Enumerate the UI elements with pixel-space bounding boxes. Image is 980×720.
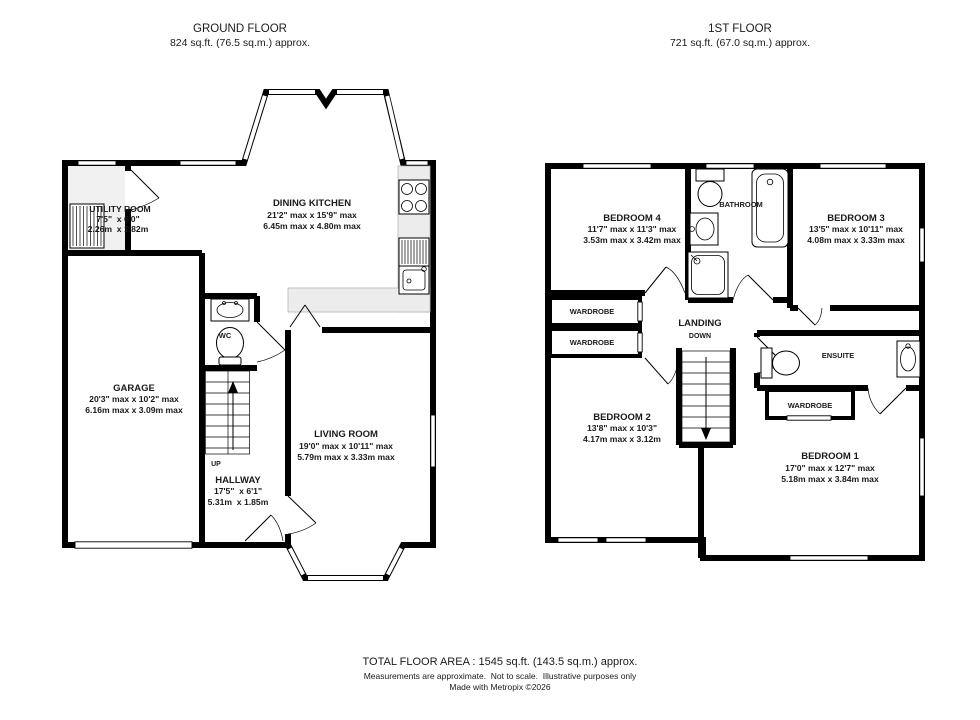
sink-icon bbox=[897, 341, 920, 377]
living-room-label: LIVING ROOM bbox=[314, 429, 378, 440]
sink-icon bbox=[690, 213, 718, 245]
first-floor-plan: BEDROOM 4 11'7" max x 11'3" max 3.53m ma… bbox=[548, 164, 924, 560]
bedroom-2-label: BEDROOM 2 bbox=[593, 412, 651, 423]
window bbox=[180, 161, 236, 165]
garage-door bbox=[75, 542, 192, 548]
bedroom-4-label: BEDROOM 4 bbox=[603, 213, 661, 224]
bedroom-4-dims-metric: 3.53m max x 3.42m max bbox=[583, 235, 681, 245]
dining-kitchen-dims-metric: 6.45m max x 4.80m max bbox=[263, 221, 361, 231]
kitchen-sink-icon bbox=[399, 238, 429, 294]
bedroom-3-dims-metric: 4.08m max x 3.33m max bbox=[807, 235, 905, 245]
window bbox=[706, 164, 754, 168]
window bbox=[431, 415, 435, 467]
wc-sink-icon bbox=[211, 299, 249, 321]
garage-dims-imperial: 20'3" max x 10'2" max bbox=[89, 394, 179, 404]
ensuite-label: ENSUITE bbox=[822, 351, 855, 360]
bedroom-1-dims-imperial: 17'0" max x 12'7" max bbox=[785, 463, 875, 473]
ground-floor-title: GROUND FLOOR bbox=[193, 23, 287, 35]
ground-floor-area: 824 sq.ft. (76.5 sq.m.) approx. bbox=[170, 37, 310, 49]
window bbox=[606, 538, 646, 542]
stairs-down-label: DOWN bbox=[689, 333, 711, 340]
bedroom-1-label: BEDROOM 1 bbox=[801, 451, 859, 462]
utility-room-label: UTILITY ROOM bbox=[89, 204, 150, 214]
credit: Made with Metropix ©2026 bbox=[449, 682, 551, 692]
stove-icon bbox=[399, 180, 429, 214]
bedroom-2-dims-imperial: 13'8" max x 10'3" bbox=[587, 423, 657, 433]
dining-kitchen-dims-imperial: 21'2" max x 15'9" max bbox=[267, 210, 357, 220]
shower-icon bbox=[688, 252, 728, 298]
wardrobe-2-label: WARDROBE bbox=[570, 338, 615, 347]
living-room-dims-imperial: 19'0" max x 10'11" max bbox=[299, 441, 393, 451]
window bbox=[558, 538, 598, 542]
bedroom-3-label: BEDROOM 3 bbox=[827, 213, 885, 224]
bathroom-label: BATHROOM bbox=[719, 200, 763, 209]
wardrobe-3-label: WARDROBE bbox=[788, 401, 833, 410]
landing-label: LANDING bbox=[678, 318, 721, 329]
window bbox=[78, 161, 116, 165]
total-floor-area: TOTAL FLOOR AREA : 1545 sq.ft. (143.5 sq… bbox=[363, 656, 638, 668]
window bbox=[820, 164, 886, 168]
dining-kitchen-label: DINING KITCHEN bbox=[273, 198, 351, 209]
bedroom-4-dims-imperial: 11'7" max x 11'3" max bbox=[588, 224, 677, 234]
stairs-up-label: UP bbox=[211, 461, 221, 468]
utility-room-dims-imperial: 7'5" x 6'0" bbox=[96, 214, 139, 224]
utility-room-dims-metric: 2.26m x 1.82m bbox=[88, 224, 149, 234]
bedroom-2-dims-metric: 4.17m max x 3.12m bbox=[583, 434, 661, 444]
window bbox=[790, 556, 868, 560]
ground-floor-plan: UTILITY ROOM 7'5" x 6'0" 2.26m x 1.82m D… bbox=[65, 92, 435, 578]
wardrobe-1-label: WARDROBE bbox=[570, 307, 615, 316]
garage-label: GARAGE bbox=[113, 383, 155, 394]
first-floor-title: 1ST FLOOR bbox=[708, 23, 772, 35]
floorplan-page: UTILITY ROOM 7'5" x 6'0" 2.26m x 1.82m D… bbox=[0, 0, 980, 720]
garage-dims-metric: 6.16m max x 3.09m max bbox=[85, 405, 183, 415]
disclaimer: Measurements are approximate. Not to sca… bbox=[364, 671, 637, 681]
bedroom-1-dims-metric: 5.18m max x 3.84m max bbox=[781, 474, 879, 484]
window bbox=[406, 161, 428, 165]
wc-label: WC bbox=[219, 331, 232, 340]
window bbox=[920, 438, 924, 496]
first-floor-area: 721 sq.ft. (67.0 sq.m.) approx. bbox=[670, 37, 810, 49]
hallway-dims-imperial: 17'5" x 6'1" bbox=[214, 486, 262, 496]
floorplan-image: UTILITY ROOM 7'5" x 6'0" 2.26m x 1.82m D… bbox=[0, 0, 980, 720]
window bbox=[583, 164, 651, 168]
living-room-dims-metric: 5.79m max x 3.33m max bbox=[297, 452, 395, 462]
bedroom-3-dims-imperial: 13'5" max x 10'11" max bbox=[809, 224, 903, 234]
window bbox=[920, 228, 924, 262]
hallway-label: HALLWAY bbox=[215, 475, 261, 486]
hallway-dims-metric: 5.31m x 1.85m bbox=[208, 497, 269, 507]
